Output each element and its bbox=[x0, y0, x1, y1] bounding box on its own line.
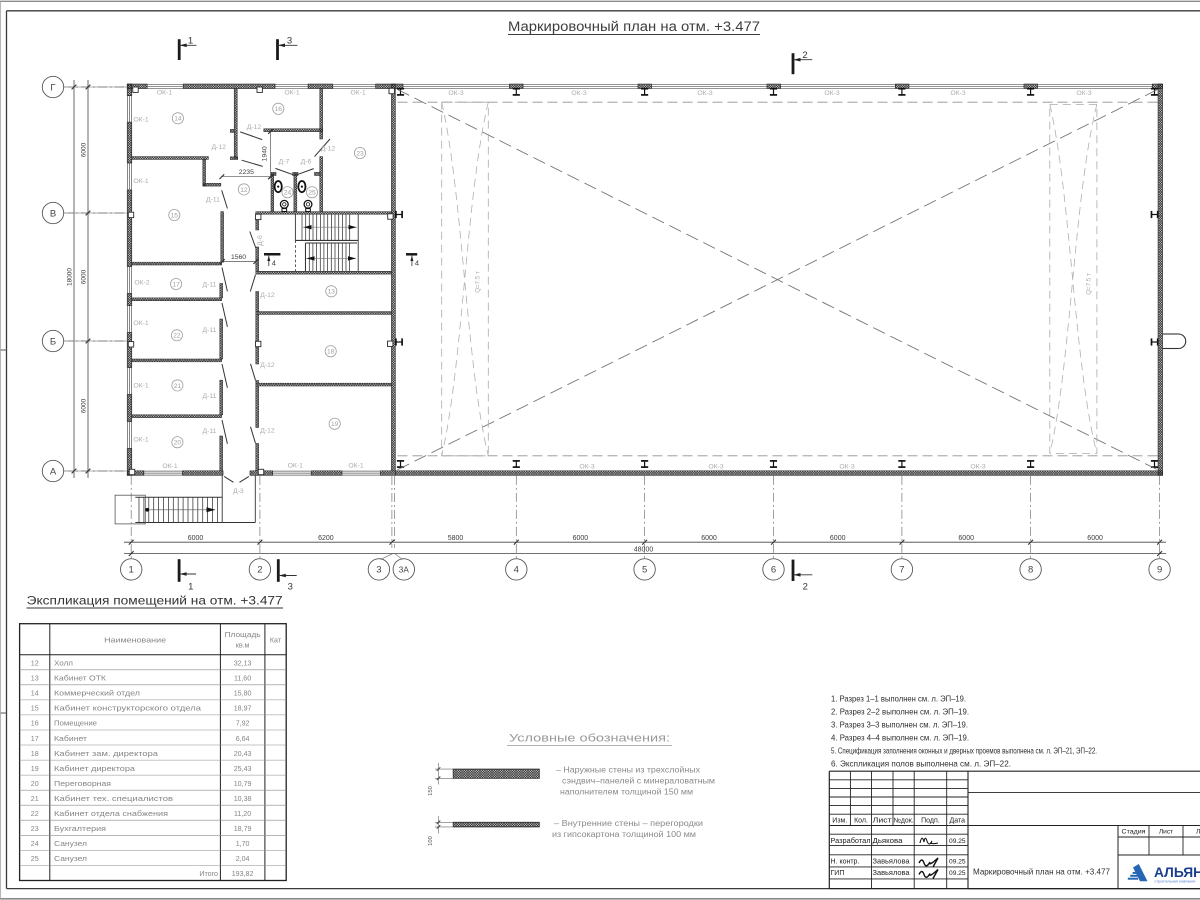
svg-text:20: 20 bbox=[174, 440, 182, 447]
svg-text:6000: 6000 bbox=[81, 142, 88, 157]
svg-text:3: 3 bbox=[288, 582, 293, 593]
svg-text:ОК-3: ОК-3 bbox=[571, 90, 587, 97]
svg-text:6. Экспликация полов выполнена: 6. Экспликация полов выполнена см. л. ЭП… bbox=[831, 758, 1011, 768]
svg-text:ОК-3: ОК-3 bbox=[824, 90, 840, 97]
svg-text:Кабинет зам. директора: Кабинет зам. директора bbox=[54, 750, 158, 758]
svg-text:Б: Б bbox=[50, 336, 56, 347]
svg-text:– Внутренние стены – перегород: – Внутренние стены – перегородки bbox=[554, 819, 703, 828]
svg-text:Д-11: Д-11 bbox=[203, 428, 217, 435]
svg-text:ОК-1: ОК-1 bbox=[133, 116, 149, 123]
svg-text:150: 150 bbox=[428, 786, 434, 796]
svg-text:6000: 6000 bbox=[830, 535, 846, 542]
svg-text:4. Разрез 4–4 выполнен см. л.: 4. Разрез 4–4 выполнен см. л. ЭП–19. bbox=[831, 732, 969, 742]
svg-text:13: 13 bbox=[31, 675, 39, 683]
svg-text:32,13: 32,13 bbox=[234, 660, 252, 668]
svg-text:А: А bbox=[50, 466, 57, 477]
svg-text:11,20: 11,20 bbox=[234, 810, 251, 818]
svg-text:Д-12: Д-12 bbox=[260, 427, 275, 434]
svg-text:Д-3: Д-3 bbox=[233, 488, 244, 495]
svg-text:6,64: 6,64 bbox=[236, 735, 250, 743]
svg-text:ОК-1: ОК-1 bbox=[350, 90, 366, 97]
svg-text:Лист: Лист bbox=[1159, 829, 1173, 836]
svg-text:ОК-1: ОК-1 bbox=[133, 320, 149, 327]
svg-text:Д-11: Д-11 bbox=[203, 282, 217, 289]
svg-text:5: 5 bbox=[642, 565, 647, 576]
svg-text:7: 7 bbox=[899, 565, 904, 576]
svg-text:Условные обозначения:: Условные обозначения: bbox=[509, 733, 670, 745]
svg-text:14: 14 bbox=[174, 116, 182, 123]
svg-text:21: 21 bbox=[31, 795, 39, 803]
svg-text:Кабинет: Кабинет bbox=[54, 735, 88, 743]
svg-text:3: 3 bbox=[287, 36, 292, 47]
svg-text:22: 22 bbox=[173, 333, 181, 340]
svg-text:Кат: Кат bbox=[270, 637, 282, 645]
svg-text:кв.м: кв.м bbox=[236, 642, 250, 650]
svg-text:ОК-3: ОК-3 bbox=[950, 90, 966, 97]
svg-text:из гипсокартона толщиной 100 м: из гипсокартона толщиной 100 мм bbox=[552, 830, 696, 839]
svg-text:Дьякова: Дьякова bbox=[873, 838, 903, 845]
svg-text:8: 8 bbox=[1028, 565, 1033, 576]
svg-text:Д-11: Д-11 bbox=[203, 393, 217, 400]
svg-text:Маркировочный план на отм. +3.: Маркировочный план на отм. +3.477 bbox=[973, 866, 1110, 876]
svg-text:25,43: 25,43 bbox=[234, 765, 252, 773]
svg-text:ОК-3: ОК-3 bbox=[579, 464, 595, 471]
svg-text:1560: 1560 bbox=[231, 254, 246, 261]
svg-text:10,79: 10,79 bbox=[234, 780, 252, 788]
svg-text:09.25: 09.25 bbox=[949, 859, 966, 866]
svg-text:2,04: 2,04 bbox=[236, 855, 250, 863]
svg-text:2: 2 bbox=[802, 50, 807, 61]
svg-text:2: 2 bbox=[803, 582, 808, 593]
svg-text:Лист: Лист bbox=[873, 818, 893, 825]
svg-text:12: 12 bbox=[240, 187, 248, 194]
svg-text:строительная компания: строительная компания bbox=[1155, 880, 1196, 884]
svg-text:ОК-3: ОК-3 bbox=[970, 464, 986, 471]
svg-text:Бухгалтерия: Бухгалтерия bbox=[54, 825, 106, 833]
svg-text:5800: 5800 bbox=[448, 535, 464, 542]
svg-text:ОК-3: ОК-3 bbox=[708, 464, 724, 471]
svg-text:25: 25 bbox=[308, 190, 316, 197]
svg-text:Изм.: Изм. bbox=[832, 818, 847, 825]
svg-text:Д-11: Д-11 bbox=[206, 197, 220, 204]
svg-text:1: 1 bbox=[129, 565, 134, 576]
svg-text:193,82: 193,82 bbox=[232, 870, 254, 878]
svg-text:Санузел: Санузел bbox=[54, 840, 87, 848]
svg-text:Итого: Итого bbox=[199, 870, 218, 878]
svg-text:25: 25 bbox=[31, 855, 39, 863]
svg-text:6000: 6000 bbox=[573, 535, 589, 542]
svg-text:Кабинет директора: Кабинет директора bbox=[54, 765, 135, 773]
svg-text:19: 19 bbox=[331, 421, 339, 428]
svg-text:20,43: 20,43 bbox=[234, 750, 252, 758]
svg-text:ОК-1: ОК-1 bbox=[284, 90, 300, 97]
svg-text:Д-12: Д-12 bbox=[260, 292, 275, 299]
svg-text:Д-12: Д-12 bbox=[211, 144, 226, 151]
svg-text:Д-6: Д-6 bbox=[301, 158, 312, 165]
svg-text:ОК-1: ОК-1 bbox=[133, 382, 149, 389]
svg-text:Завьялова: Завьялова bbox=[873, 859, 910, 866]
svg-text:3А: 3А bbox=[399, 565, 410, 574]
svg-text:Г: Г bbox=[50, 82, 55, 93]
svg-text:сэндвич–панелей с минераловатн: сэндвич–панелей с минераловатным bbox=[562, 777, 715, 786]
svg-text:18: 18 bbox=[31, 750, 39, 758]
svg-text:22: 22 bbox=[31, 810, 39, 818]
svg-text:6: 6 bbox=[771, 565, 776, 576]
svg-text:Помещение: Помещение bbox=[54, 720, 97, 728]
svg-text:15: 15 bbox=[171, 212, 179, 219]
svg-text:1: 1 bbox=[188, 582, 193, 593]
svg-text:Кабинет ОТК: Кабинет ОТК bbox=[54, 675, 107, 683]
svg-text:4: 4 bbox=[514, 565, 519, 576]
svg-text:наполнителем толщиной 150 мм: наполнителем толщиной 150 мм bbox=[560, 788, 693, 797]
svg-text:17: 17 bbox=[172, 281, 180, 288]
svg-text:ОК-1: ОК-1 bbox=[348, 462, 364, 469]
svg-text:Н. контр.: Н. контр. bbox=[831, 859, 860, 866]
svg-text:Стадия: Стадия bbox=[1122, 829, 1146, 836]
svg-text:12: 12 bbox=[31, 660, 39, 668]
svg-text:18000: 18000 bbox=[67, 268, 74, 286]
svg-text:Разработал: Разработал bbox=[831, 837, 871, 845]
svg-text:18,79: 18,79 bbox=[234, 825, 252, 833]
svg-text:Д-12: Д-12 bbox=[260, 362, 275, 369]
svg-text:4: 4 bbox=[415, 258, 419, 267]
svg-text:100: 100 bbox=[428, 836, 434, 846]
svg-text:11,60: 11,60 bbox=[234, 675, 251, 683]
svg-text:4: 4 bbox=[272, 258, 276, 267]
svg-text:№док.: №док. bbox=[894, 818, 914, 825]
svg-text:09.25: 09.25 bbox=[949, 838, 966, 845]
svg-text:24: 24 bbox=[284, 190, 292, 197]
svg-text:9: 9 bbox=[1157, 565, 1162, 576]
svg-text:6000: 6000 bbox=[1087, 535, 1103, 542]
svg-text:18: 18 bbox=[327, 349, 335, 356]
svg-text:Экспликация помещений на отм.: Экспликация помещений на отм. +3.477 bbox=[27, 594, 283, 608]
svg-text:6200: 6200 bbox=[318, 535, 334, 542]
svg-text:6000: 6000 bbox=[188, 535, 204, 542]
svg-text:48000: 48000 bbox=[634, 546, 654, 553]
svg-text:6000: 6000 bbox=[958, 535, 974, 542]
svg-text:13: 13 bbox=[328, 289, 336, 296]
svg-text:09.25: 09.25 bbox=[949, 870, 966, 877]
svg-text:Дата: Дата bbox=[950, 818, 966, 825]
svg-text:Наименование: Наименование bbox=[104, 637, 166, 645]
svg-text:ОК-2: ОК-2 bbox=[134, 280, 150, 287]
svg-text:Переговорная: Переговорная bbox=[54, 780, 111, 788]
svg-text:В: В bbox=[50, 208, 56, 219]
svg-text:Подп.: Подп. bbox=[921, 818, 940, 825]
svg-text:Площадь: Площадь bbox=[225, 631, 261, 639]
svg-text:Д-11: Д-11 bbox=[203, 327, 217, 334]
svg-text:Д-12: Д-12 bbox=[321, 146, 336, 153]
svg-text:21: 21 bbox=[174, 383, 182, 390]
svg-text:Завьялова: Завьялова bbox=[873, 870, 910, 877]
svg-text:6000: 6000 bbox=[81, 398, 88, 413]
svg-text:Кабинет тех. специалистов: Кабинет тех. специалистов bbox=[54, 795, 173, 803]
svg-text:Кабинет отдела снабжения: Кабинет отдела снабжения bbox=[54, 810, 168, 818]
svg-text:ОК-3: ОК-3 bbox=[1076, 90, 1092, 97]
svg-text:3. Разрез 3–3 выполнен см. л.: 3. Разрез 3–3 выполнен см. л. ЭП–19. bbox=[831, 719, 968, 729]
svg-text:Маркировочный план на отм. +3.: Маркировочный план на отм. +3.477 bbox=[508, 19, 760, 34]
svg-text:23: 23 bbox=[31, 825, 39, 833]
svg-text:Q=7.5 т: Q=7.5 т bbox=[475, 271, 482, 293]
svg-text:ОК-1: ОК-1 bbox=[133, 437, 149, 444]
svg-text:Д-6: Д-6 bbox=[257, 235, 264, 246]
svg-text:10,38: 10,38 bbox=[234, 795, 252, 803]
svg-text:Холл: Холл bbox=[54, 660, 73, 668]
svg-text:Кабинет конструкторского отдел: Кабинет конструкторского отдела bbox=[54, 705, 201, 713]
svg-text:АЛЬЯНС: АЛЬЯНС bbox=[1154, 865, 1200, 880]
svg-text:ОК-1: ОК-1 bbox=[157, 90, 173, 97]
svg-text:ОК-1: ОК-1 bbox=[133, 178, 149, 185]
svg-text:ГИП: ГИП bbox=[831, 870, 845, 877]
svg-text:20: 20 bbox=[31, 780, 39, 788]
svg-text:6000: 6000 bbox=[701, 535, 717, 542]
svg-text:ОК-3: ОК-3 bbox=[448, 90, 464, 97]
svg-text:19: 19 bbox=[31, 765, 39, 773]
svg-text:2235: 2235 bbox=[239, 169, 254, 176]
svg-text:2: 2 bbox=[257, 565, 262, 576]
svg-text:15: 15 bbox=[31, 705, 39, 713]
svg-text:15,80: 15,80 bbox=[234, 690, 252, 698]
svg-text:1. Разрез 1–1 выполнен см. л.: 1. Разрез 1–1 выполнен см. л. ЭП–19. bbox=[831, 693, 966, 703]
svg-text:16: 16 bbox=[31, 720, 39, 728]
svg-text:17: 17 bbox=[31, 735, 39, 743]
svg-text:18,97: 18,97 bbox=[234, 705, 252, 713]
svg-text:1: 1 bbox=[188, 36, 193, 47]
svg-text:Санузел: Санузел bbox=[54, 855, 87, 863]
svg-text:3: 3 bbox=[376, 565, 381, 576]
svg-text:Q=7.5 т: Q=7.5 т bbox=[1086, 273, 1093, 295]
svg-text:Коммерческий отдел: Коммерческий отдел bbox=[54, 690, 140, 698]
svg-text:2. Разрез 2–2 выполнен см. л.: 2. Разрез 2–2 выполнен см. л. ЭП–19. bbox=[831, 706, 969, 716]
svg-text:ОК-1: ОК-1 bbox=[288, 462, 304, 469]
svg-text:ОК-3: ОК-3 bbox=[697, 90, 713, 97]
svg-text:– Наружные стены из трехслойны: – Наружные стены из трехслойных bbox=[556, 766, 700, 775]
svg-text:Кол.: Кол. bbox=[854, 818, 868, 825]
svg-text:16: 16 bbox=[275, 106, 283, 113]
svg-text:1,70: 1,70 bbox=[236, 840, 250, 848]
svg-text:Листов: Листов bbox=[1196, 829, 1200, 836]
svg-text:5. Спецификация заполнения око: 5. Спецификация заполнения оконных и две… bbox=[831, 745, 1097, 755]
svg-text:Д-12: Д-12 bbox=[247, 124, 262, 131]
svg-text:14: 14 bbox=[31, 690, 39, 698]
svg-text:ОК-3: ОК-3 bbox=[839, 464, 855, 471]
svg-text:23: 23 bbox=[356, 150, 364, 157]
svg-text:6000: 6000 bbox=[81, 269, 88, 284]
svg-text:1940: 1940 bbox=[262, 146, 269, 161]
svg-text:24: 24 bbox=[31, 840, 39, 848]
svg-text:7,92: 7,92 bbox=[236, 720, 250, 728]
svg-text:Д-7: Д-7 bbox=[279, 158, 290, 165]
svg-text:ОК-1: ОК-1 bbox=[162, 463, 178, 470]
